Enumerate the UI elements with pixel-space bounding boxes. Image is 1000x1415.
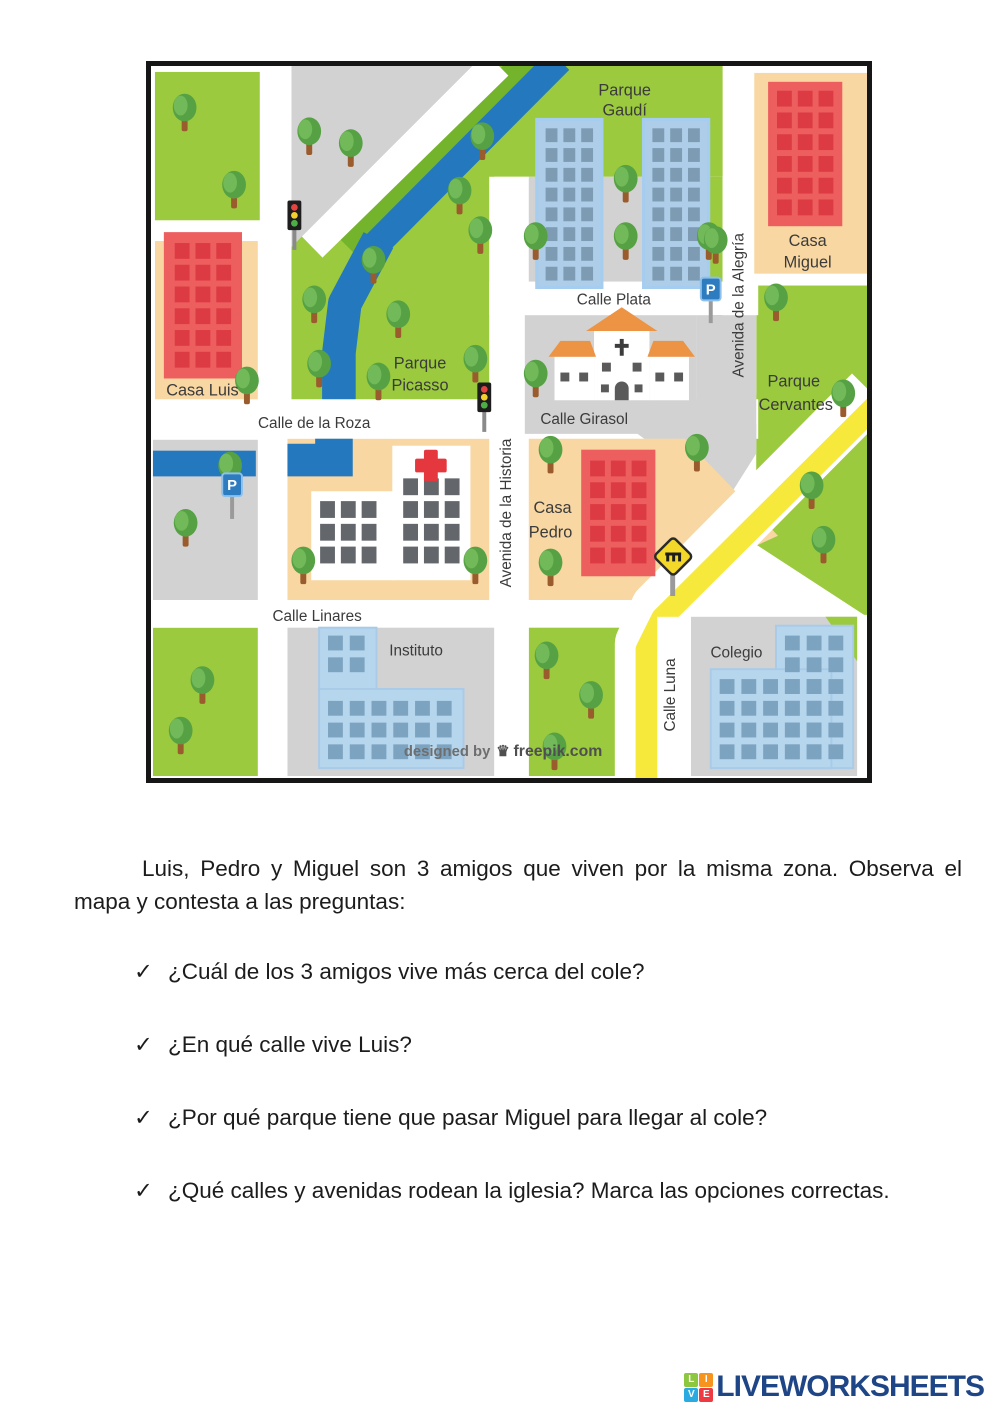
- casa-miguel-label: Casa: [789, 232, 828, 250]
- worksheet-page: P: [0, 0, 1000, 1415]
- left-vertical-road[interactable]: [260, 66, 292, 407]
- green-block-topleft: [155, 72, 262, 220]
- logo-tile: I: [699, 1373, 713, 1387]
- question-item: ✓¿Por qué parque tiene que pasar Miguel …: [134, 1101, 962, 1134]
- avenida-alegria-label: Avenida de la Alegría: [730, 233, 747, 378]
- brand-name: LIVEWORKSHEETS: [716, 1370, 984, 1404]
- casa-miguel-building[interactable]: [768, 82, 842, 226]
- calle-plata-label: Calle Plata: [577, 291, 652, 308]
- colegio-label: Colegio: [710, 644, 762, 661]
- casa-luis-label: Casa Luis: [166, 381, 238, 399]
- parque-picasso-label: Picasso: [391, 376, 448, 394]
- instituto-label: Instituto: [389, 642, 443, 659]
- city-map: P: [146, 61, 872, 783]
- freepik-watermark: designed by♛freepik.com: [404, 743, 602, 760]
- logo-tile: L: [684, 1373, 698, 1387]
- calle-linares-label: Calle Linares: [272, 608, 362, 625]
- question-text: ¿Por qué parque tiene que pasar Miguel p…: [168, 1105, 767, 1130]
- avenida-historia-label: Avenida de la Historia: [498, 438, 515, 587]
- calle-luna-label: Calle Luna: [662, 658, 679, 732]
- gaudi-tower-2: [643, 119, 708, 287]
- casa-luis-building[interactable]: [164, 232, 242, 378]
- calle-roza-label: Calle de la Roza: [258, 415, 371, 432]
- logo-tile: V: [684, 1388, 698, 1402]
- liveworksheets-logo[interactable]: L I V E LIVEWORKSHEETS: [684, 1370, 984, 1404]
- question-item: ✓¿Cuál de los 3 amigos vive más cerca de…: [134, 955, 962, 988]
- parque-picasso-label: Parque: [394, 355, 447, 373]
- parque-cervantes-label: Cervantes: [759, 396, 833, 414]
- liveworksheets-logo-icon: L I V E: [684, 1373, 713, 1402]
- worksheet-text: Luis, Pedro y Miguel son 3 amigos que vi…: [74, 852, 962, 1247]
- green-block-bottomleft: [153, 628, 258, 776]
- river-notch-over: [287, 439, 352, 477]
- parque-cervantes-label: Parque: [768, 372, 821, 390]
- check-bullet-icon: ✓: [134, 1174, 168, 1207]
- question-text: ¿Cuál de los 3 amigos vive más cerca del…: [168, 959, 644, 984]
- check-bullet-icon: ✓: [134, 1101, 168, 1134]
- check-bullet-icon: ✓: [134, 1028, 168, 1061]
- question-text: ¿En qué calle vive Luis?: [168, 1032, 412, 1057]
- question-item: ✓¿En qué calle vive Luis?: [134, 1028, 962, 1061]
- calle-girasol-label: Calle Girasol: [540, 411, 628, 428]
- casa-pedro-building[interactable]: [581, 450, 655, 577]
- parque-gaudi-label: Gaudí: [603, 101, 648, 119]
- logo-tile: E: [699, 1388, 713, 1402]
- question-text: ¿Qué calles y avenidas rodean la iglesia…: [168, 1178, 890, 1203]
- crown-icon: ♛: [496, 744, 509, 760]
- question-list: ✓¿Cuál de los 3 amigos vive más cerca de…: [74, 955, 962, 1207]
- check-bullet-icon: ✓: [134, 955, 168, 988]
- intro-paragraph: Luis, Pedro y Miguel son 3 amigos que vi…: [74, 852, 962, 918]
- casa-pedro-label: Pedro: [529, 524, 573, 542]
- casa-pedro-label: Casa: [533, 499, 572, 517]
- city-map-svg: P: [151, 66, 867, 778]
- gaudi-tower-1: [537, 119, 602, 287]
- parque-gaudi-label: Parque: [598, 82, 651, 100]
- question-item: ✓¿Qué calles y avenidas rodean la iglesi…: [134, 1174, 962, 1207]
- casa-miguel-label: Miguel: [784, 254, 832, 272]
